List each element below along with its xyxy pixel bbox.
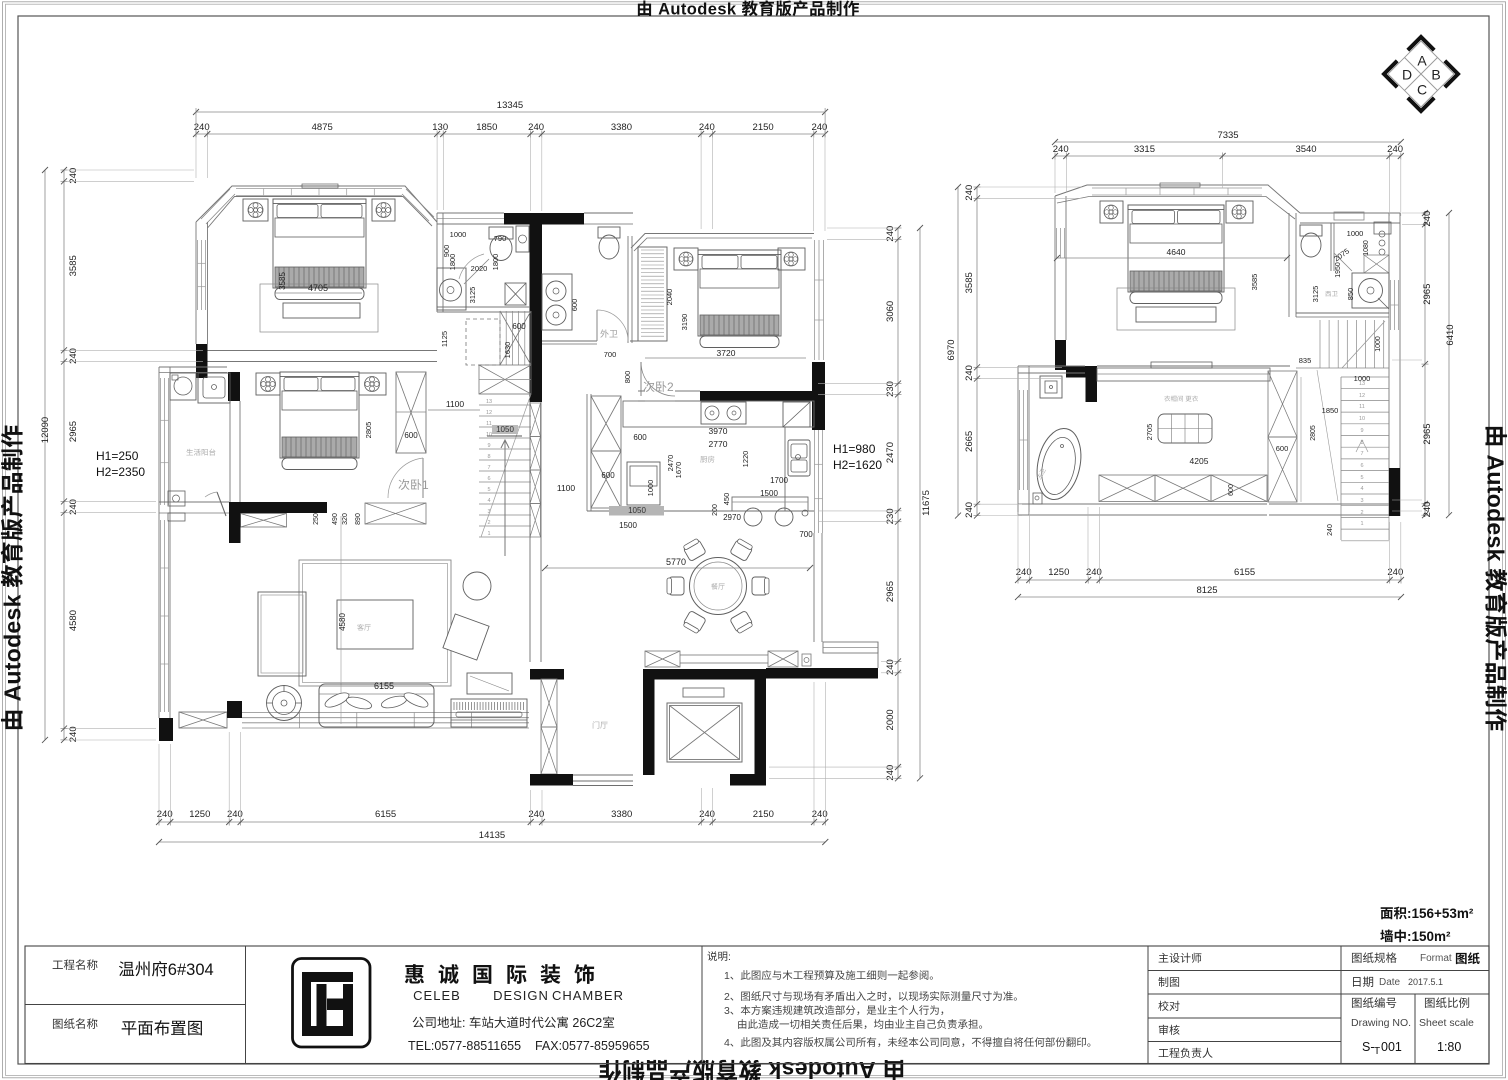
svg-text:5: 5	[1360, 475, 1363, 481]
svg-text:2: 2	[667, 380, 674, 394]
svg-text:Autodesk: Autodesk	[0, 588, 26, 709]
svg-text:2: 2	[724, 991, 730, 1003]
svg-text::156+53m²: :156+53m²	[1407, 906, 1474, 921]
svg-text:240: 240	[1053, 144, 1069, 155]
svg-text:1250: 1250	[189, 809, 210, 820]
svg-text:1: 1	[422, 478, 429, 492]
svg-text:240: 240	[1422, 502, 1433, 518]
svg-text:1630: 1630	[503, 342, 512, 359]
svg-text:1800: 1800	[491, 254, 500, 271]
svg-text:2805: 2805	[1310, 425, 1317, 441]
svg-text:1850: 1850	[1322, 406, 1339, 415]
svg-text:600: 600	[404, 431, 418, 440]
svg-text:6: 6	[1360, 463, 1363, 469]
svg-text:8: 8	[1360, 440, 1363, 446]
svg-text:600: 600	[512, 322, 526, 331]
svg-text:H2=1620: H2=1620	[833, 458, 882, 472]
svg-text:790: 790	[494, 234, 507, 243]
svg-text::: :	[728, 951, 731, 963]
svg-text:6155: 6155	[374, 681, 394, 691]
svg-text:1850: 1850	[476, 122, 497, 133]
svg-text:8: 8	[487, 454, 490, 460]
svg-text:2: 2	[1360, 510, 1363, 516]
svg-text:3125: 3125	[1311, 286, 1320, 303]
svg-text:1250: 1250	[1048, 567, 1069, 578]
svg-text:3: 3	[1360, 498, 1363, 504]
svg-text:240: 240	[964, 365, 975, 381]
svg-text:12090: 12090	[40, 417, 51, 443]
svg-text:4580: 4580	[338, 613, 347, 631]
svg-text:1220: 1220	[741, 451, 750, 468]
svg-text:11675: 11675	[921, 490, 932, 516]
svg-text:A: A	[1417, 53, 1427, 69]
svg-text:850: 850	[1346, 288, 1355, 301]
svg-text:2470: 2470	[885, 442, 896, 463]
svg-text:3585: 3585	[278, 272, 287, 290]
svg-text:3970: 3970	[709, 426, 728, 436]
svg-text:6970: 6970	[946, 339, 957, 360]
svg-text:Drawing NO.: Drawing NO.	[1351, 1017, 1411, 1029]
svg-text:4: 4	[487, 498, 490, 504]
svg-text:S-: S-	[1362, 1040, 1375, 1054]
svg-text:6155: 6155	[375, 809, 396, 820]
svg-text:1500: 1500	[760, 489, 778, 498]
svg-text:6: 6	[487, 476, 490, 482]
svg-text:T: T	[1374, 1046, 1380, 1057]
svg-text:H1=250: H1=250	[96, 449, 139, 463]
svg-text:Format: Format	[1420, 953, 1452, 964]
svg-text:3190: 3190	[680, 314, 689, 331]
svg-text:9: 9	[487, 443, 490, 449]
svg-text:3540: 3540	[1295, 144, 1316, 155]
svg-text:2965: 2965	[1422, 284, 1433, 305]
svg-text:3585: 3585	[1250, 274, 1259, 291]
svg-text:600: 600	[1276, 444, 1289, 453]
svg-text:4: 4	[1360, 486, 1363, 492]
svg-text:2000: 2000	[885, 709, 896, 730]
svg-text:2150: 2150	[753, 122, 774, 133]
svg-text:1670: 1670	[674, 462, 683, 479]
svg-text:5770: 5770	[666, 557, 686, 567]
svg-text:2150: 2150	[753, 809, 774, 820]
svg-text:7: 7	[1360, 451, 1363, 457]
svg-text:13345: 13345	[497, 100, 523, 111]
svg-text:Autodesk: Autodesk	[653, 1, 741, 19]
svg-text:240: 240	[699, 122, 715, 133]
svg-text:800: 800	[623, 371, 632, 384]
svg-text:3125: 3125	[468, 287, 477, 304]
svg-text:Autodesk: Autodesk	[762, 1057, 883, 1080]
svg-text:600: 600	[601, 471, 615, 480]
svg-text:2770: 2770	[709, 439, 728, 449]
svg-text:2965: 2965	[68, 421, 79, 442]
svg-text:6155: 6155	[1234, 567, 1255, 578]
svg-text:4705: 4705	[308, 283, 328, 293]
svg-text:3: 3	[724, 1005, 730, 1017]
svg-text:3060: 3060	[885, 301, 896, 322]
svg-text:1050: 1050	[496, 425, 514, 434]
svg-text:4205: 4205	[1190, 456, 1209, 466]
svg-text:1000: 1000	[450, 230, 467, 239]
svg-text:5: 5	[487, 487, 490, 493]
svg-text:10: 10	[486, 432, 492, 438]
svg-text:2665: 2665	[964, 431, 975, 452]
svg-text:4: 4	[724, 1037, 730, 1049]
svg-text:2017.5.1: 2017.5.1	[1408, 977, 1443, 987]
svg-text:C: C	[1417, 82, 1427, 98]
svg-text::: :	[462, 1016, 469, 1030]
svg-text:3380: 3380	[611, 809, 632, 820]
svg-text:320: 320	[342, 513, 349, 525]
svg-text:CHAMBER: CHAMBER	[552, 988, 624, 1003]
svg-text:8125: 8125	[1196, 585, 1217, 596]
svg-text:Date: Date	[1379, 977, 1401, 988]
svg-text:4640: 4640	[1167, 247, 1186, 257]
svg-text:1000: 1000	[1354, 374, 1371, 383]
svg-text:1: 1	[487, 531, 490, 537]
svg-text:2040: 2040	[665, 289, 674, 306]
svg-text:6410: 6410	[1445, 324, 1456, 345]
svg-text:Autodesk: Autodesk	[1483, 448, 1508, 569]
svg-text:240: 240	[1327, 524, 1334, 536]
svg-text:1:80: 1:80	[1437, 1040, 1461, 1054]
svg-text:1050: 1050	[628, 506, 646, 515]
svg-text:10: 10	[1359, 416, 1365, 422]
svg-text:240: 240	[964, 185, 975, 201]
svg-text:B: B	[1431, 67, 1440, 83]
svg-text:450: 450	[722, 493, 731, 506]
svg-text:4580: 4580	[68, 610, 79, 631]
svg-text:1950: 1950	[1335, 262, 1342, 278]
svg-text:6#304: 6#304	[168, 961, 214, 979]
svg-text:9: 9	[1360, 428, 1363, 434]
svg-text:TEL:0577-88511655 FAX:0577-: TEL:0577-88511655 FAX:0577-85959655	[408, 1039, 650, 1053]
svg-text:DESIGN: DESIGN	[493, 988, 549, 1003]
svg-text:2020: 2020	[471, 264, 488, 273]
svg-text:7: 7	[487, 465, 490, 471]
svg-text:2705: 2705	[1145, 424, 1154, 441]
svg-text:1080: 1080	[1363, 240, 1370, 256]
svg-text:1000: 1000	[1347, 229, 1364, 238]
svg-text:Sheet scale: Sheet scale	[1419, 1017, 1474, 1029]
svg-text:1100: 1100	[446, 399, 465, 409]
svg-text:600: 600	[1228, 484, 1235, 496]
svg-text:3720: 3720	[717, 348, 736, 358]
svg-text::150m²: :150m²	[1407, 929, 1451, 944]
svg-text:2965: 2965	[885, 581, 896, 602]
svg-text:1: 1	[724, 970, 730, 982]
svg-text:1700: 1700	[770, 476, 788, 485]
svg-text:200: 200	[712, 504, 719, 516]
svg-text:14135: 14135	[479, 830, 505, 841]
svg-text:12: 12	[1359, 393, 1365, 399]
svg-text:11: 11	[486, 421, 492, 427]
svg-text:26C2: 26C2	[569, 1016, 602, 1030]
svg-text:1: 1	[1360, 521, 1363, 527]
svg-text:250: 250	[313, 513, 320, 525]
svg-text:1125: 1125	[440, 331, 449, 347]
svg-text:600: 600	[570, 299, 579, 312]
svg-text:H1=980: H1=980	[833, 442, 876, 456]
svg-text:240: 240	[1387, 144, 1403, 155]
svg-text:D: D	[1402, 67, 1412, 83]
svg-text:2805: 2805	[364, 422, 373, 439]
svg-text:890: 890	[355, 513, 362, 525]
svg-text:2970: 2970	[723, 513, 741, 522]
svg-text:240: 240	[528, 122, 544, 133]
svg-text:CELEB: CELEB	[413, 988, 461, 1003]
svg-text:2965: 2965	[1422, 423, 1433, 444]
svg-text:1000: 1000	[1375, 336, 1382, 352]
svg-text:7335: 7335	[1217, 130, 1238, 141]
svg-text:1800: 1800	[448, 254, 457, 271]
svg-text:1000: 1000	[646, 480, 655, 497]
svg-text:130: 130	[432, 122, 448, 133]
svg-text:240: 240	[1422, 211, 1433, 227]
svg-text:3585: 3585	[964, 272, 975, 293]
svg-text:3315: 3315	[1134, 144, 1155, 155]
svg-text:240: 240	[964, 502, 975, 518]
svg-text:13: 13	[486, 399, 492, 405]
svg-text:11: 11	[1359, 404, 1365, 410]
svg-text:001: 001	[1381, 1040, 1402, 1054]
svg-text:12: 12	[486, 410, 492, 416]
svg-text:2: 2	[487, 520, 490, 526]
svg-text:1100: 1100	[557, 483, 576, 493]
svg-text:4875: 4875	[312, 122, 333, 133]
svg-text:835: 835	[1299, 356, 1312, 365]
svg-text:3380: 3380	[611, 122, 632, 133]
svg-text:H2=2350: H2=2350	[96, 465, 145, 479]
svg-text:700: 700	[604, 350, 617, 359]
svg-text:600: 600	[633, 433, 647, 442]
svg-text:700: 700	[799, 530, 813, 539]
svg-text:1500: 1500	[619, 521, 637, 530]
svg-text:490: 490	[332, 513, 339, 525]
svg-text:3585: 3585	[68, 255, 79, 276]
